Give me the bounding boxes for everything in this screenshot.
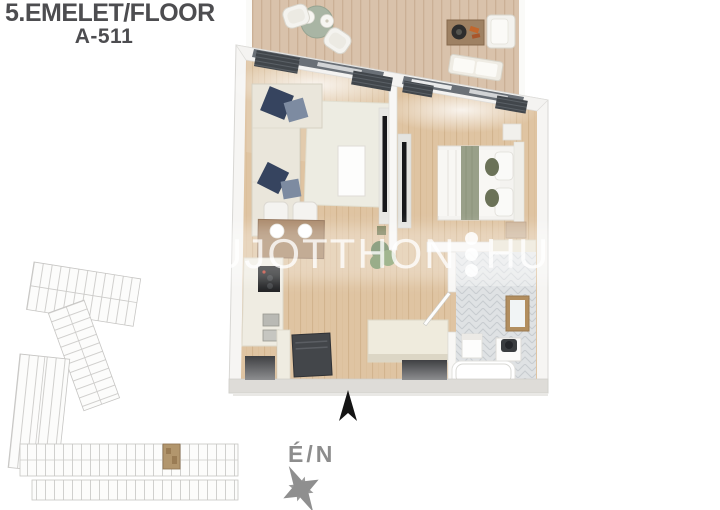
floor-plan-canvas — [0, 0, 720, 510]
pillow — [281, 179, 302, 200]
compass-label: É/N — [288, 441, 335, 468]
unit-title: A-511 — [5, 26, 203, 48]
floor-title: 5.EMELET/FLOOR — [5, 0, 203, 26]
tv-living — [383, 116, 388, 212]
door-opening — [402, 360, 447, 380]
key-plan-highlighted-unit — [163, 444, 180, 469]
tv-bedroom — [402, 142, 407, 222]
title-block: 5.EMELET/FLOOR A-511 — [5, 0, 203, 48]
key-plan — [8, 262, 238, 500]
balcony-coffee-table — [447, 20, 484, 45]
washing-machine — [496, 338, 521, 361]
shoe-bench — [292, 333, 332, 377]
vanity-mirror — [506, 296, 529, 331]
dining-table — [258, 219, 325, 258]
page: UJOTTHON HU 5.EMELET/FLOOR A-511 É/N — [0, 0, 720, 510]
entry-door-opening — [245, 356, 275, 380]
headboard — [514, 142, 524, 224]
nightstand — [506, 222, 526, 238]
sink — [263, 314, 279, 326]
bed-runner — [461, 146, 479, 220]
apartment-plan — [227, 0, 548, 396]
nightstand — [503, 124, 521, 140]
balcony-lounge-chair — [487, 15, 515, 48]
coffee-table — [338, 146, 365, 196]
